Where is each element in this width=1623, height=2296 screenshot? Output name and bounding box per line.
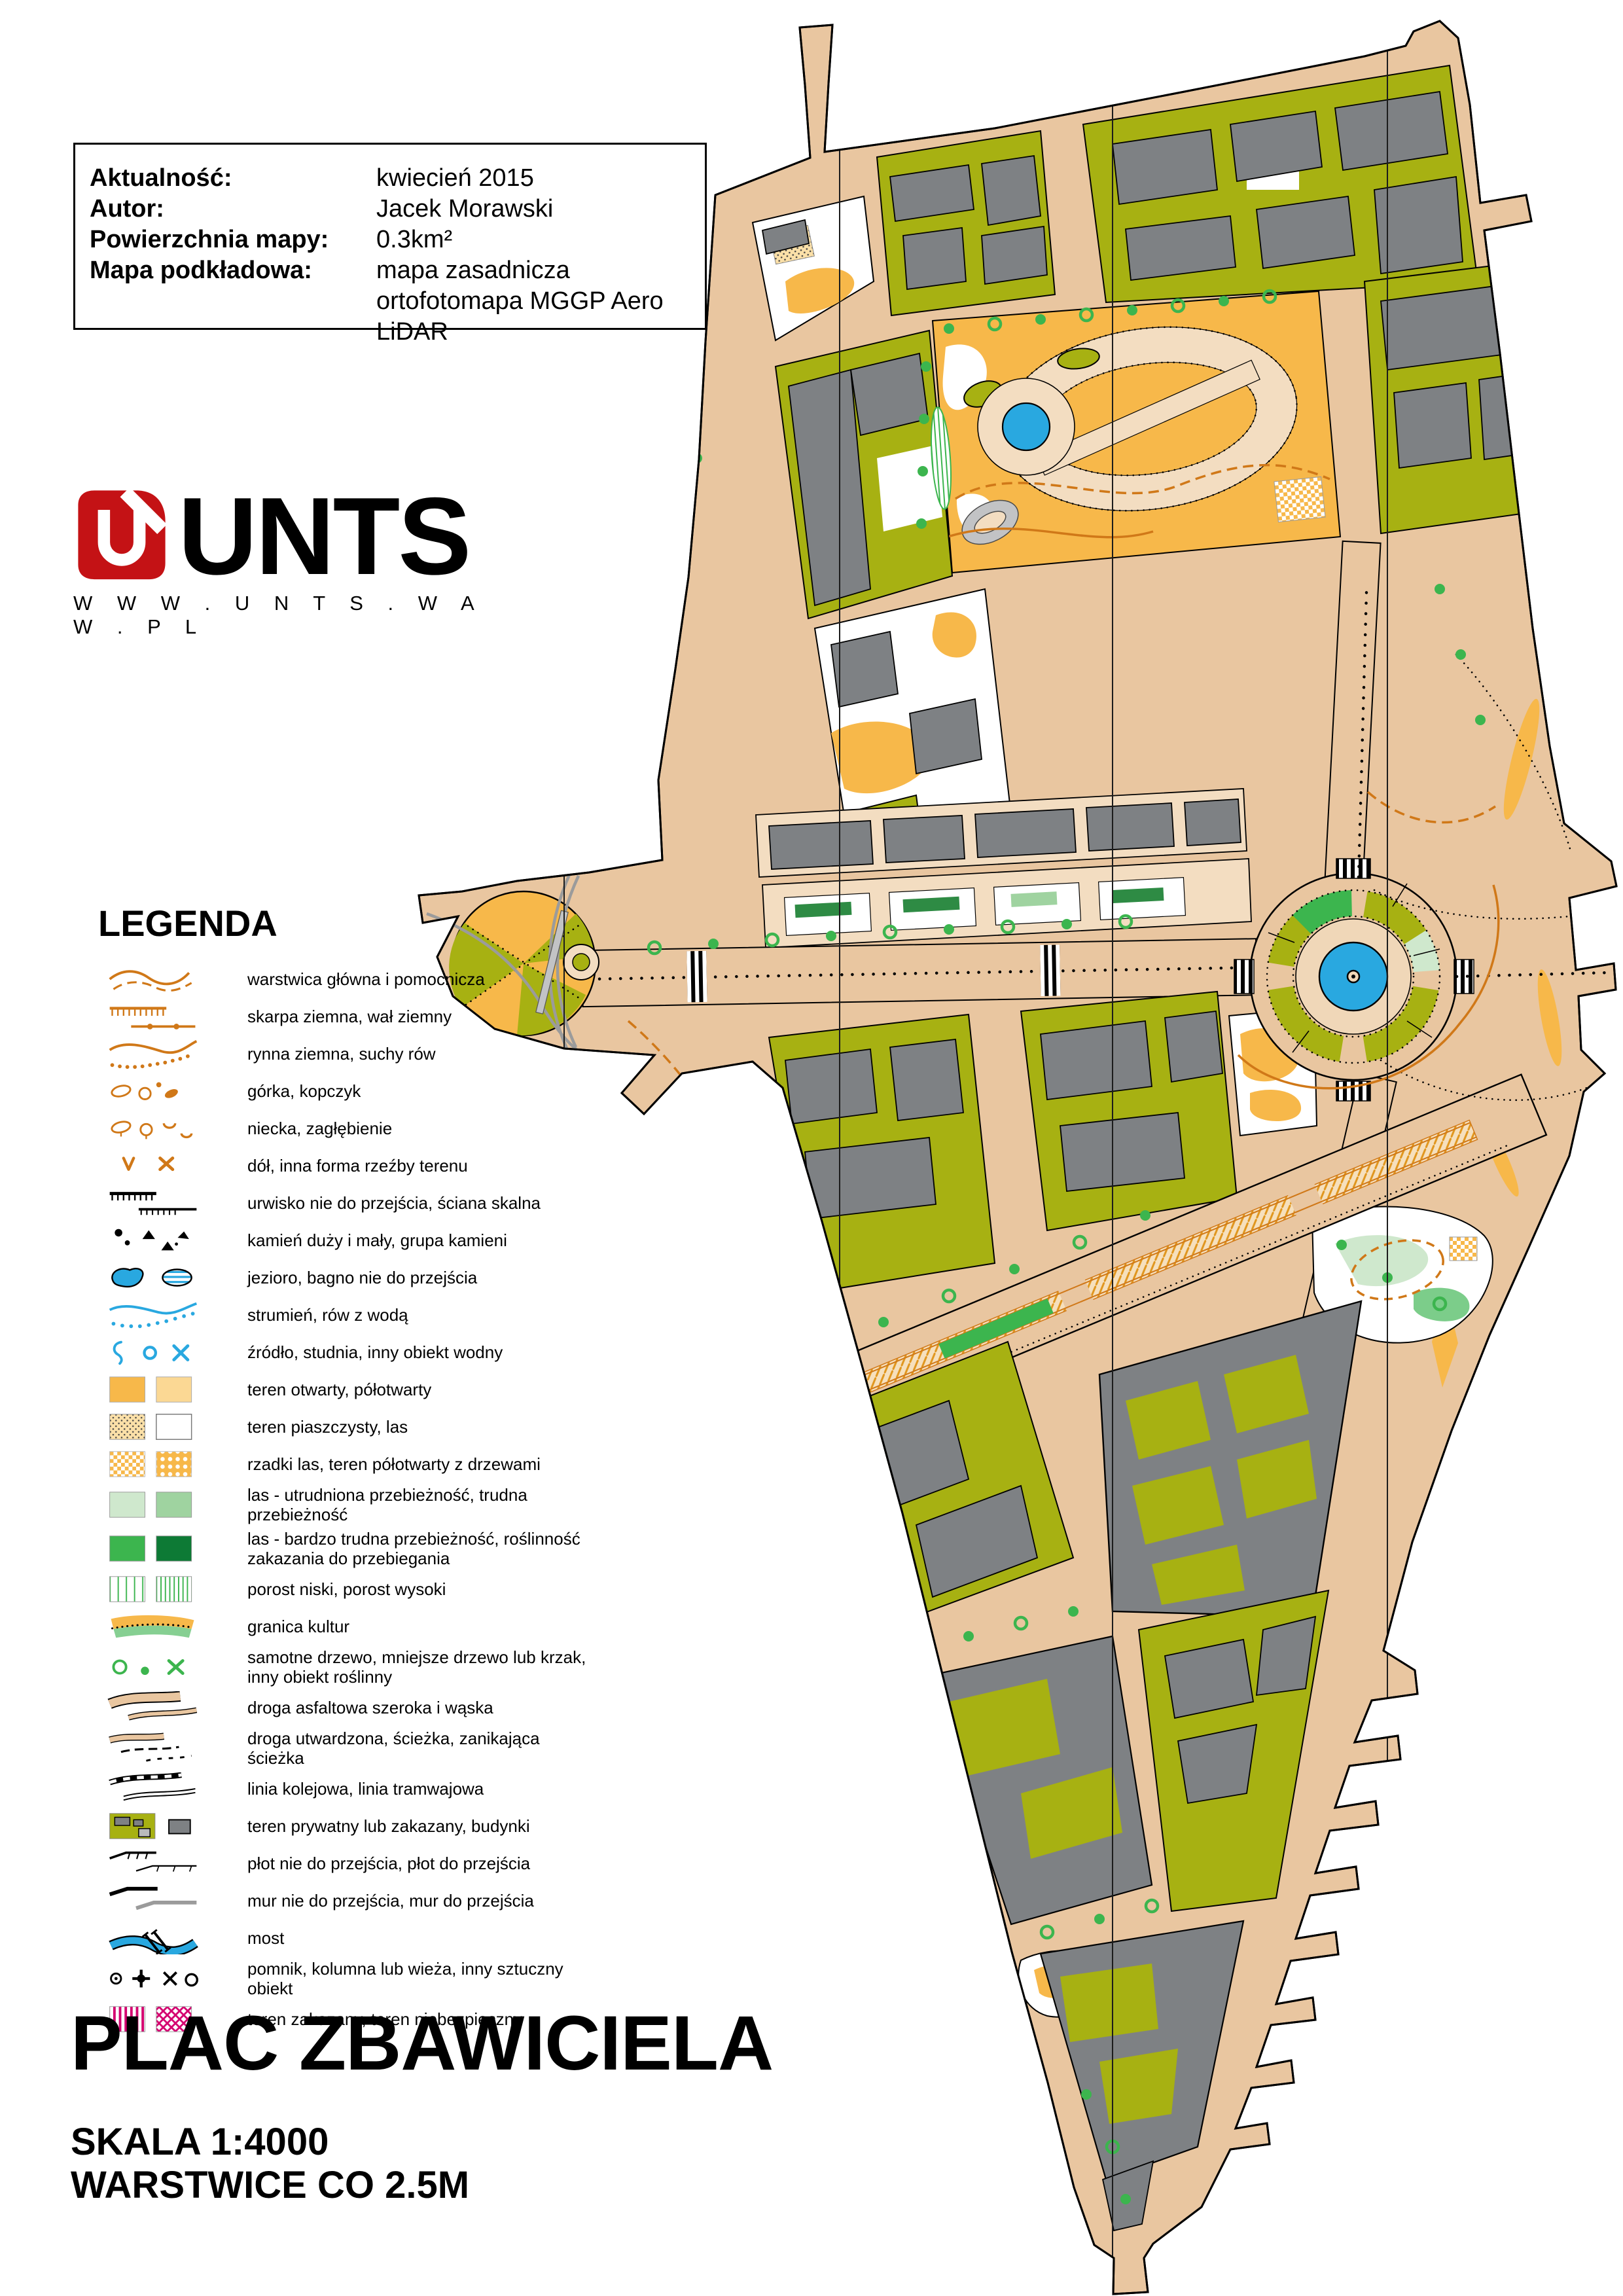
pedestrian-crossing: [1336, 859, 1370, 878]
legend-label: las - utrudniona przebieżność, trudna pr…: [247, 1485, 588, 1524]
map-sheet: Aktualność: kwiecień 2015 Autor: Jacek M…: [0, 0, 1623, 2296]
info-value: Jacek Morawski: [376, 194, 705, 224]
earth-bank-icon: [98, 1000, 247, 1033]
legend-item: mur nie do przejścia, mur do przejścia: [98, 1884, 596, 1917]
rough-open-trees-icon: [98, 1448, 247, 1480]
info-row: Mapa podkładowa: mapa zasadnicza ortofot…: [90, 255, 705, 348]
legend-label: skarpa ziemna, wał ziemny: [247, 1007, 452, 1026]
legend-label: teren piaszczysty, las: [247, 1417, 408, 1437]
legend-label: pomnik, kolumna lub wieża, inny sztuczny…: [247, 1959, 588, 1998]
legend-item: las - bardzo trudna przebieżność, roślin…: [98, 1529, 596, 1568]
unts-logo: UNTS W W W . U N T S . W A W . P L: [73, 486, 505, 639]
legend-label: mur nie do przejścia, mur do przejścia: [247, 1891, 534, 1910]
info-row: Aktualność: kwiecień 2015: [90, 163, 705, 194]
legend: LEGENDA warstwica główna i pomocnicza sk…: [98, 902, 596, 2036]
legend-item: granica kultur: [98, 1610, 596, 1643]
pit-icon: [98, 1149, 247, 1182]
legend-label: kamień duży i mały, grupa kamieni: [247, 1230, 507, 1250]
lone-tree-icon: [98, 1651, 247, 1683]
info-row: Autor: Jacek Morawski: [90, 194, 705, 224]
legend-item: źródło, studnia, inny obiekt wodny: [98, 1336, 596, 1369]
legend-label: samotne drzewo, mniejsze drzewo lub krza…: [247, 1647, 588, 1687]
logo-url: W W W . U N T S . W A W . P L: [73, 592, 505, 639]
legend-label: jezioro, bagno nie do przejścia: [247, 1268, 477, 1287]
legend-item: niecka, zagłębienie: [98, 1112, 596, 1145]
open-land-icon: [98, 1373, 247, 1406]
legend-label: droga utwardzona, ścieżka, zanikająca śc…: [247, 1729, 588, 1768]
legend-title: LEGENDA: [98, 902, 596, 944]
legend-item: droga utwardzona, ścieżka, zanikająca śc…: [98, 1729, 596, 1768]
city-block: [877, 131, 1055, 315]
info-label: Aktualność:: [90, 163, 376, 194]
legend-label: teren otwarty, półotwarty: [247, 1380, 431, 1399]
info-value: 0.3km²: [376, 224, 705, 255]
legend-item: dół, inna forma rzeźby terenu: [98, 1149, 596, 1182]
legend-item: płot nie do przejścia, płot do przejścia: [98, 1847, 596, 1880]
legend-item: las - utrudniona przebieżność, trudna pr…: [98, 1485, 596, 1524]
legend-label: niecka, zagłębienie: [247, 1119, 392, 1138]
bridge-icon: [98, 1922, 247, 1954]
forest-difficult-icon: [98, 1532, 247, 1565]
pedestrian-crossing: [1040, 944, 1060, 996]
legend-item: górka, kopczyk: [98, 1075, 596, 1107]
legend-label: porost niski, porost wysoki: [247, 1579, 446, 1599]
legend-item: linia kolejowa, linia tramwajowa: [98, 1772, 596, 1805]
city-block: [929, 1636, 1152, 1924]
legend-item: droga asfaltowa szeroka i wąska: [98, 1691, 596, 1724]
legend-item: urwisko nie do przejścia, ściana skalna: [98, 1187, 596, 1219]
legend-item: teren otwarty, półotwarty: [98, 1373, 596, 1406]
legend-item: rynna ziemna, suchy rów: [98, 1037, 596, 1070]
info-row: Powierzchnia mapy: 0.3km²: [90, 224, 705, 255]
legend-label: rynna ziemna, suchy rów: [247, 1044, 436, 1064]
contour-lines-icon: [98, 963, 247, 996]
info-value: mapa zasadnicza ortofotomapa MGGP Aero L…: [376, 255, 705, 348]
lake-marsh-icon: [98, 1261, 247, 1294]
legend-label: urwisko nie do przejścia, ściana skalna: [247, 1193, 541, 1213]
info-label: Mapa podkładowa:: [90, 255, 376, 348]
legend-item: teren prywatny lub zakazany, budynki: [98, 1810, 596, 1842]
impassable-cliff-icon: [98, 1187, 247, 1219]
pond: [1003, 403, 1050, 450]
depression-icon: [98, 1112, 247, 1145]
legend-label: granica kultur: [247, 1617, 349, 1636]
map-title: PLAC ZBAWICIELA: [71, 2004, 773, 2083]
forest-slow-icon: [98, 1488, 247, 1521]
knoll-icon: [98, 1075, 247, 1107]
legend-item: rzadki las, teren półotwarty z drzewami: [98, 1448, 596, 1480]
legend-label: płot nie do przejścia, płot do przejścia: [247, 1854, 530, 1873]
legend-label: górka, kopczyk: [247, 1081, 361, 1101]
legend-label: warstwica główna i pomocnicza: [247, 969, 485, 989]
legend-item: samotne drzewo, mniejsze drzewo lub krza…: [98, 1647, 596, 1687]
city-block: [1021, 992, 1237, 1230]
pedestrian-crossing: [687, 951, 707, 1003]
legend-item: porost niski, porost wysoki: [98, 1573, 596, 1605]
legend-label: źródło, studnia, inny obiekt wodny: [247, 1342, 503, 1362]
info-label: Autor:: [90, 194, 376, 224]
railway-tram-icon: [98, 1772, 247, 1805]
legend-item: most: [98, 1922, 596, 1954]
fence-icon: [98, 1847, 247, 1880]
main-street: [582, 939, 1257, 1007]
boulder-icon: [98, 1224, 247, 1257]
sandy-ground-icon: [98, 1410, 247, 1443]
legend-list: warstwica główna i pomocnicza skarpa zie…: [98, 963, 596, 2036]
legend-label: teren prywatny lub zakazany, budynki: [247, 1816, 530, 1836]
unts-logo-icon: [73, 486, 170, 583]
info-label: Powierzchnia mapy:: [90, 224, 376, 255]
logo-wordmark: UNTS: [178, 490, 469, 583]
legend-label: rzadki las, teren półotwarty z drzewami: [247, 1454, 541, 1474]
legend-item: teren piaszczysty, las: [98, 1410, 596, 1443]
legend-label: strumień, rów z wodą: [247, 1305, 408, 1325]
legend-item: jezioro, bagno nie do przejścia: [98, 1261, 596, 1294]
pedestrian-crossing: [1234, 960, 1254, 994]
legend-item: strumień, rów z wodą: [98, 1299, 596, 1331]
legend-label: droga asfaltowa szeroka i wąska: [247, 1698, 493, 1717]
info-value: kwiecień 2015: [376, 163, 705, 194]
private-area-buildings-icon: [98, 1810, 247, 1842]
wall-icon: [98, 1884, 247, 1917]
monument-icon: [98, 1962, 247, 1995]
legend-label: las - bardzo trudna przebieżność, roślin…: [247, 1529, 588, 1568]
legend-item: warstwica główna i pomocnicza: [98, 963, 596, 996]
paved-road-icon: [98, 1691, 247, 1724]
map-info-box: Aktualność: kwiecień 2015 Autor: Jacek M…: [73, 143, 707, 330]
map-contour-interval: WARSTWICE CO 2.5M: [71, 2164, 773, 2207]
legend-item: skarpa ziemna, wał ziemny: [98, 1000, 596, 1033]
footpath-icon: [98, 1732, 247, 1765]
stream-icon: [98, 1299, 247, 1331]
water-feature-icon: [98, 1336, 247, 1369]
city-block: [776, 331, 954, 619]
city-block: [1364, 262, 1544, 533]
erosion-gully-icon: [98, 1037, 247, 1070]
legend-item: kamień duży i mały, grupa kamieni: [98, 1224, 596, 1257]
park: [933, 291, 1340, 573]
cultivation-boundary-icon: [98, 1610, 247, 1643]
legend-label: linia kolejowa, linia tramwajowa: [247, 1779, 484, 1799]
undergrowth-icon: [98, 1573, 247, 1605]
legend-label: dół, inna forma rzeźby terenu: [247, 1156, 468, 1175]
legend-label: most: [247, 1928, 284, 1948]
map-scale: SKALA 1:4000: [71, 2121, 773, 2164]
legend-item: pomnik, kolumna lub wieża, inny sztuczny…: [98, 1959, 596, 1998]
title-block: PLAC ZBAWICIELA SKALA 1:4000 WARSTWICE C…: [71, 2004, 773, 2207]
